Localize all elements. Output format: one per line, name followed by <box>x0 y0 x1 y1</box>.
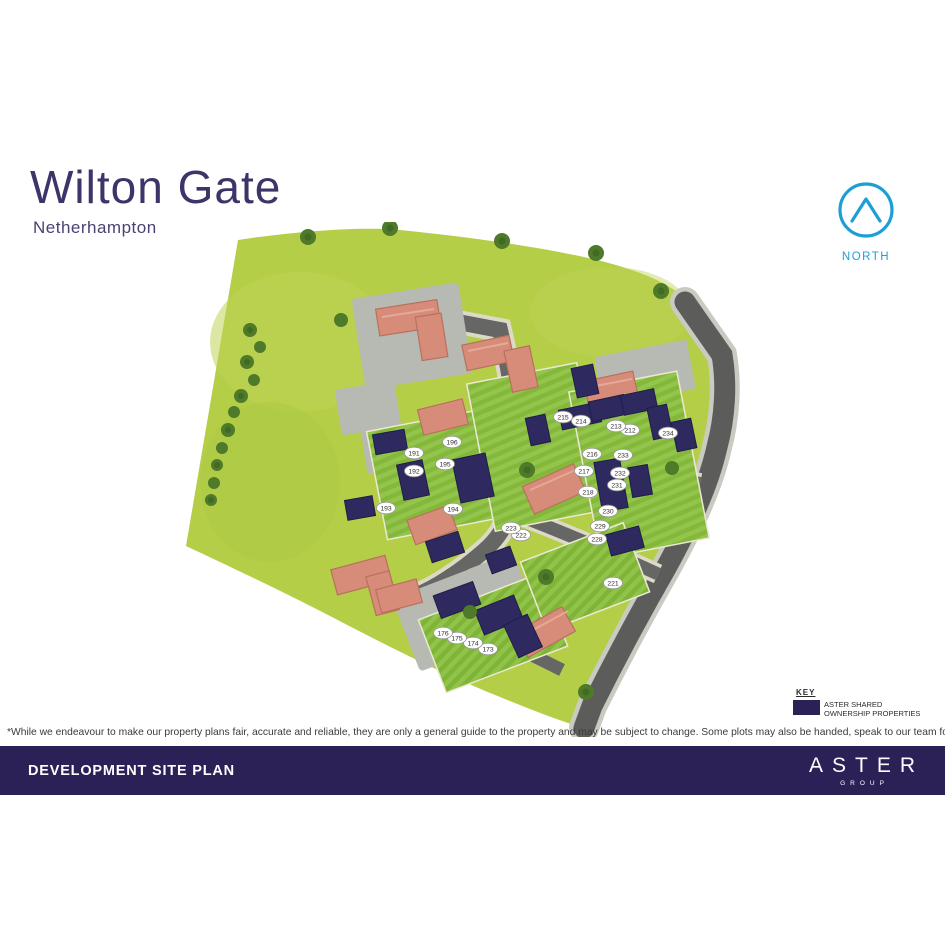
plot-number-194: 194 <box>447 506 459 513</box>
map-key: KEY ASTER SHARED OWNERSHIP PROPERTIES <box>793 688 933 719</box>
plot-number-221: 221 <box>607 580 619 587</box>
development-site-plan-page: Wilton Gate Netherhampton NORTH <box>0 0 945 945</box>
disclaimer-text: *While we endeavour to make our property… <box>7 727 937 738</box>
plot-number-196: 196 <box>446 439 458 446</box>
plot-number-216: 216 <box>586 451 598 458</box>
plot-number-173: 173 <box>482 646 494 653</box>
plot-number-215: 215 <box>557 414 569 421</box>
plot-number-192: 192 <box>408 468 420 475</box>
plot-number-176: 176 <box>437 630 449 637</box>
footer-title: DEVELOPMENT SITE PLAN <box>28 763 235 779</box>
plot-number-217: 217 <box>578 468 590 475</box>
plot-number-233: 233 <box>617 452 629 459</box>
north-label: NORTH <box>828 251 904 263</box>
north-compass-icon <box>828 178 904 242</box>
plot-number-193: 193 <box>380 505 392 512</box>
plot-number-231: 231 <box>611 482 623 489</box>
plot-number-218: 218 <box>582 489 594 496</box>
page-title: Wilton Gate <box>30 160 281 214</box>
key-heading: KEY <box>796 688 933 697</box>
plot-number-213: 213 <box>610 423 622 430</box>
plot-number-229: 229 <box>594 523 606 530</box>
site-plan-map: 1731741751761911921931941951962122132142… <box>180 222 740 737</box>
plot-number-212: 212 <box>624 427 636 434</box>
plot-number-230: 230 <box>602 508 614 515</box>
plot-number-232: 232 <box>614 470 626 477</box>
brand-subtitle: GROUP <box>809 780 920 787</box>
plot-number-228: 228 <box>591 536 603 543</box>
key-label: ASTER SHARED OWNERSHIP PROPERTIES <box>824 700 920 719</box>
page-subtitle: Netherhampton <box>33 218 157 238</box>
footer-bar: DEVELOPMENT SITE PLAN ASTER GROUP <box>0 746 945 795</box>
plot-number-214: 214 <box>575 418 587 425</box>
north-indicator: NORTH <box>828 178 904 263</box>
plot-number-223: 223 <box>505 525 517 532</box>
plot-number-191: 191 <box>408 450 420 457</box>
aster-group-logo: ASTER GROUP <box>809 754 915 787</box>
plot-number-174: 174 <box>467 640 479 647</box>
plot-number-175: 175 <box>451 635 463 642</box>
brand-name: ASTER <box>809 754 924 778</box>
plot-number-222: 222 <box>515 532 527 539</box>
plot-number-195: 195 <box>439 461 451 468</box>
plot-number-234: 234 <box>662 430 674 437</box>
key-swatch-aster-navy <box>793 700 820 715</box>
